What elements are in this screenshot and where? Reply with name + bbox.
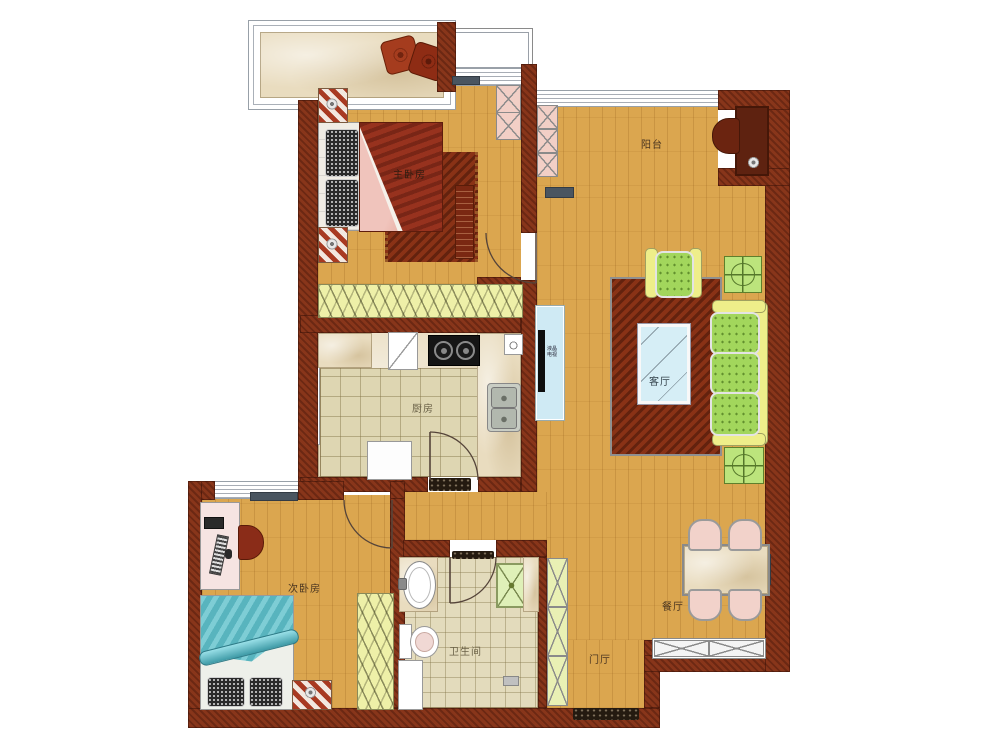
kitchen-doormat bbox=[429, 478, 471, 491]
dining-chair bbox=[728, 519, 762, 551]
sofa-cushion bbox=[710, 352, 760, 395]
corridor-floor bbox=[403, 492, 547, 540]
tv-screen bbox=[538, 330, 545, 392]
entry-cabinet bbox=[547, 558, 568, 706]
cabinet-cell bbox=[547, 656, 568, 706]
master-cabinet bbox=[496, 85, 521, 140]
toilet-seat bbox=[415, 632, 434, 652]
balcony-top-floor bbox=[537, 104, 718, 186]
kitchen-board bbox=[388, 332, 418, 370]
dining-chair bbox=[688, 589, 722, 621]
sill-bar bbox=[250, 492, 298, 501]
dining-chair bbox=[688, 519, 722, 551]
cabinet-cell bbox=[547, 558, 568, 607]
tv-label: 液晶电视 bbox=[547, 346, 559, 358]
nightstand-lamp-icon bbox=[326, 238, 338, 250]
cabinet-cell bbox=[496, 85, 521, 113]
wall bbox=[538, 557, 547, 708]
stove-burner bbox=[456, 341, 475, 360]
wall bbox=[478, 477, 521, 492]
wall bbox=[496, 540, 547, 557]
nightstand-lamp-icon bbox=[304, 686, 317, 699]
sink-basin bbox=[491, 387, 517, 408]
washing-machine bbox=[398, 660, 423, 710]
bath-faucet bbox=[398, 578, 407, 590]
master-dresser bbox=[455, 185, 474, 259]
kitchen-counter bbox=[318, 333, 372, 368]
armchair-cushion bbox=[655, 251, 694, 298]
wall bbox=[298, 100, 318, 492]
room-label-second-bedroom: 次卧房 bbox=[288, 580, 321, 595]
floorplan-canvas: 液晶电视 bbox=[0, 0, 1000, 750]
hall-cabinet bbox=[537, 105, 558, 177]
second-bedroom-wardrobe bbox=[357, 593, 394, 710]
floor-drain bbox=[503, 676, 519, 686]
desk-flower-icon bbox=[747, 156, 760, 169]
cabinet-cell bbox=[537, 105, 558, 129]
wall bbox=[403, 540, 450, 557]
wall bbox=[521, 64, 537, 233]
room-label-balcony: 阳台 bbox=[641, 136, 663, 151]
desk-monitor bbox=[204, 517, 224, 529]
bedroom2-desk bbox=[200, 502, 240, 590]
toilet-bowl bbox=[410, 626, 439, 658]
sofa-cushion bbox=[710, 312, 760, 355]
living-top-window bbox=[535, 90, 724, 107]
room-label-living-room: 客厅 bbox=[649, 373, 671, 388]
desk-mouse bbox=[225, 549, 232, 559]
bed-pillow bbox=[207, 677, 245, 707]
coffee-table bbox=[638, 324, 690, 404]
room-label-bathroom: 卫生间 bbox=[449, 643, 482, 658]
room-label-dining-room: 餐厅 bbox=[662, 598, 684, 613]
cabinet-cell bbox=[537, 129, 558, 153]
plant-icon bbox=[724, 447, 764, 484]
bed-pillow bbox=[325, 129, 359, 177]
sofa-cushion bbox=[710, 392, 760, 436]
cabinet-cell bbox=[537, 153, 558, 177]
stove-burner bbox=[434, 341, 453, 360]
fridge bbox=[367, 441, 412, 480]
stove bbox=[428, 335, 480, 366]
shoe-cabinet bbox=[652, 638, 766, 659]
desk-chair bbox=[712, 118, 740, 154]
sink-basin bbox=[491, 408, 517, 429]
kitchen-sink bbox=[487, 383, 521, 432]
master-closet bbox=[318, 284, 523, 318]
cabinet-cell bbox=[654, 640, 709, 657]
nightstand-lamp-icon bbox=[326, 98, 338, 110]
balcony-door-track bbox=[545, 187, 574, 198]
cabinet-cell bbox=[709, 640, 764, 657]
bed-pillow bbox=[325, 179, 359, 227]
wall bbox=[521, 280, 537, 492]
cabinet-cell bbox=[547, 607, 568, 656]
room-label-master-bedroom: 主卧房 bbox=[393, 166, 426, 181]
cabinet-cell bbox=[496, 112, 521, 140]
dining-chair bbox=[728, 589, 762, 621]
sill-bar bbox=[452, 76, 480, 85]
room-label-entry-hall: 门厅 bbox=[589, 651, 611, 666]
wall bbox=[298, 481, 344, 500]
bath-sink bbox=[403, 561, 436, 609]
entrance-doormat bbox=[573, 708, 639, 720]
kitchen-corner-box bbox=[504, 334, 523, 355]
plant-icon bbox=[724, 256, 762, 293]
bed-pillow bbox=[249, 677, 283, 707]
second-bed bbox=[200, 595, 294, 710]
shower-side-counter bbox=[523, 557, 539, 612]
room-label-kitchen: 厨房 bbox=[412, 400, 434, 415]
bathroom-doormat bbox=[452, 551, 494, 559]
